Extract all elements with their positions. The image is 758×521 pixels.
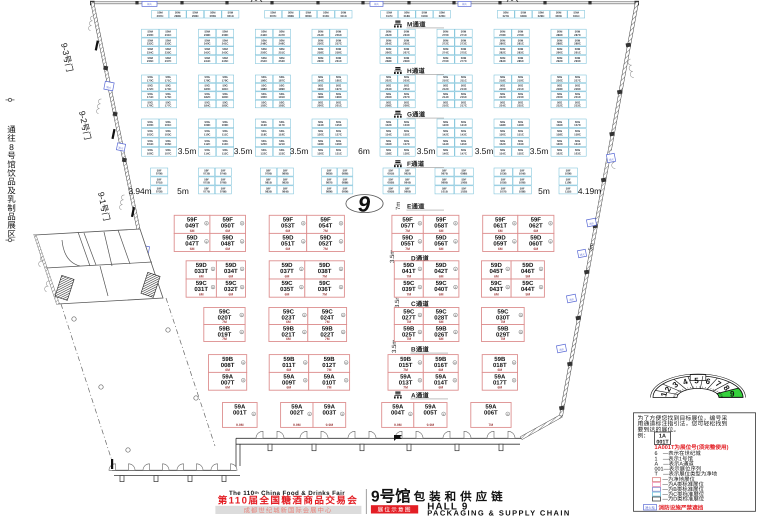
svg-text:126C: 126C bbox=[317, 132, 324, 136]
svg-text:117C: 117C bbox=[279, 123, 286, 127]
svg-text:074B: 074B bbox=[220, 172, 227, 176]
svg-text:114C: 114C bbox=[204, 151, 211, 155]
svg-text:199C: 199C bbox=[335, 95, 342, 99]
svg-text:153C: 153C bbox=[517, 142, 524, 146]
svg-text:150C: 150C bbox=[499, 132, 506, 136]
svg-text:59D: 59D bbox=[402, 235, 414, 242]
svg-text:143C: 143C bbox=[460, 132, 467, 136]
svg-text:59A: 59A bbox=[400, 374, 412, 381]
svg-text:F通道: F通道 bbox=[407, 160, 425, 168]
svg-text:252C: 252C bbox=[261, 59, 268, 63]
svg-text:328D: 328D bbox=[520, 14, 527, 18]
svg-text:124C: 124C bbox=[317, 123, 324, 127]
svg-text:157C: 157C bbox=[574, 123, 581, 127]
svg-text:235C: 235C bbox=[165, 50, 172, 54]
svg-text:230C: 230C bbox=[147, 33, 154, 37]
svg-text:203C: 203C bbox=[403, 78, 410, 82]
svg-text:59A: 59A bbox=[234, 404, 246, 411]
svg-text:176C: 176C bbox=[147, 104, 154, 108]
svg-text:111C: 111C bbox=[222, 132, 228, 136]
svg-text:174C: 174C bbox=[147, 95, 154, 99]
svg-text:3.94m: 3.94m bbox=[128, 186, 151, 196]
svg-text:G通道: G通道 bbox=[407, 111, 426, 119]
svg-text:6M: 6M bbox=[286, 229, 291, 233]
svg-text:5M: 5M bbox=[525, 293, 530, 297]
svg-text:消防设施严禁遮挡: 消防设施严禁遮挡 bbox=[659, 504, 704, 511]
svg-text:215C: 215C bbox=[460, 95, 467, 99]
svg-text:7M: 7M bbox=[403, 368, 408, 372]
svg-text:195C: 195C bbox=[335, 78, 342, 82]
svg-text:183C: 183C bbox=[222, 95, 229, 99]
svg-text:098B: 098B bbox=[461, 172, 468, 176]
svg-text:6M: 6M bbox=[190, 247, 195, 251]
svg-text:6M: 6M bbox=[229, 293, 234, 297]
svg-text:082B: 082B bbox=[282, 181, 289, 185]
svg-text:246C: 246C bbox=[261, 33, 268, 37]
svg-text:232C: 232C bbox=[147, 42, 154, 46]
svg-text:59F: 59F bbox=[436, 217, 447, 224]
svg-text:101B: 101B bbox=[441, 190, 448, 194]
svg-text:225C: 225C bbox=[517, 104, 524, 108]
svg-text:219C: 219C bbox=[517, 78, 524, 82]
svg-text:120C: 120C bbox=[261, 142, 268, 146]
svg-text:151C: 151C bbox=[517, 132, 524, 136]
svg-text:088B: 088B bbox=[342, 181, 349, 185]
svg-text:279C: 279C bbox=[517, 33, 524, 37]
svg-text:59D: 59D bbox=[495, 235, 507, 242]
svg-text:6M: 6M bbox=[439, 293, 444, 297]
svg-text:160C: 160C bbox=[556, 142, 563, 146]
svg-text:233C: 233C bbox=[574, 104, 581, 108]
svg-text:59C: 59C bbox=[281, 280, 293, 287]
svg-text:142C: 142C bbox=[442, 132, 449, 136]
svg-text:141C: 141C bbox=[460, 123, 467, 127]
svg-text:123C: 123C bbox=[278, 151, 285, 155]
svg-text:185C: 185C bbox=[222, 104, 229, 108]
svg-text:59B: 59B bbox=[222, 356, 234, 363]
svg-text:7M: 7M bbox=[322, 274, 327, 278]
svg-text:59C: 59C bbox=[225, 280, 237, 287]
svg-text:6M: 6M bbox=[225, 229, 230, 233]
svg-text:310D: 310D bbox=[323, 14, 330, 18]
svg-text:9: 9 bbox=[358, 192, 371, 217]
svg-text:186C: 186C bbox=[261, 78, 268, 82]
svg-text:071B: 071B bbox=[156, 181, 163, 185]
svg-text:122C: 122C bbox=[261, 151, 268, 155]
svg-text:130C: 130C bbox=[317, 151, 324, 155]
svg-text:9.9M: 9.9M bbox=[236, 423, 244, 427]
svg-text:159C: 159C bbox=[574, 132, 581, 136]
svg-text:6M: 6M bbox=[225, 386, 230, 390]
svg-text:59D: 59D bbox=[403, 262, 415, 269]
svg-text:092B: 092B bbox=[404, 172, 411, 176]
svg-text:087B: 087B bbox=[326, 181, 333, 185]
svg-text:消火栓: 消火栓 bbox=[645, 506, 656, 510]
svg-text:094B: 094B bbox=[404, 181, 411, 185]
svg-text:231C: 231C bbox=[165, 33, 172, 37]
svg-text:3.5m: 3.5m bbox=[475, 146, 494, 156]
svg-text:113C: 113C bbox=[222, 142, 229, 146]
svg-text:131C: 131C bbox=[335, 151, 342, 155]
svg-text:201C: 201C bbox=[335, 104, 342, 108]
svg-text:243C: 243C bbox=[222, 50, 229, 54]
svg-text:59A: 59A bbox=[425, 404, 437, 411]
svg-text:7M: 7M bbox=[323, 247, 328, 251]
svg-text:7M: 7M bbox=[403, 386, 408, 390]
svg-text:266C: 266C bbox=[385, 50, 392, 54]
svg-text:177C: 177C bbox=[165, 104, 172, 108]
svg-text:175C: 175C bbox=[165, 95, 172, 99]
svg-text:6M: 6M bbox=[225, 247, 230, 251]
svg-text:109C: 109C bbox=[222, 123, 229, 127]
svg-text:245C: 245C bbox=[222, 59, 229, 63]
svg-text:308D: 308D bbox=[287, 14, 294, 18]
svg-text:59B: 59B bbox=[435, 356, 447, 363]
svg-text:220C: 220C bbox=[499, 87, 506, 91]
svg-text:223C: 223C bbox=[517, 95, 524, 99]
svg-text:207C: 207C bbox=[403, 95, 410, 99]
svg-text:005T: 005T bbox=[424, 410, 438, 417]
svg-text:162C: 162C bbox=[556, 151, 563, 155]
svg-text:154C: 154C bbox=[499, 151, 506, 155]
svg-text:5m: 5m bbox=[538, 186, 550, 196]
svg-text:188C: 188C bbox=[261, 87, 268, 91]
svg-text:59D: 59D bbox=[491, 262, 503, 269]
svg-text:59A: 59A bbox=[494, 374, 506, 381]
svg-text:161C: 161C bbox=[574, 142, 581, 146]
svg-text:267C: 267C bbox=[403, 50, 410, 54]
svg-text:330D: 330D bbox=[555, 14, 562, 18]
svg-text:展位示意图: 展位示意图 bbox=[378, 507, 412, 514]
svg-text:204C: 204C bbox=[385, 87, 392, 91]
svg-text:107C: 107C bbox=[165, 151, 172, 155]
svg-text:59F: 59F bbox=[223, 217, 234, 224]
svg-text:7M: 7M bbox=[222, 320, 227, 324]
svg-text:095B: 095B bbox=[388, 190, 395, 194]
svg-text:105C: 105C bbox=[165, 142, 172, 146]
svg-text:135C: 135C bbox=[403, 132, 410, 136]
svg-text:230C: 230C bbox=[556, 95, 563, 99]
svg-text:236C: 236C bbox=[147, 59, 154, 63]
svg-text:6M: 6M bbox=[439, 229, 444, 233]
svg-text:077B: 077B bbox=[203, 190, 210, 194]
svg-text:276C: 276C bbox=[442, 59, 449, 63]
svg-text:6M: 6M bbox=[286, 247, 291, 251]
svg-text:3.5m: 3.5m bbox=[290, 146, 309, 156]
svg-text:281C: 281C bbox=[517, 42, 524, 46]
svg-text:7M: 7M bbox=[322, 293, 327, 297]
svg-text:089B: 089B bbox=[326, 190, 333, 194]
svg-text:181C: 181C bbox=[222, 87, 229, 91]
svg-text:217C: 217C bbox=[460, 104, 467, 108]
svg-text:147C: 147C bbox=[460, 151, 467, 155]
svg-text:288C: 288C bbox=[556, 42, 563, 46]
svg-text:171C: 171C bbox=[165, 78, 172, 82]
svg-text:103C: 103C bbox=[165, 132, 172, 136]
svg-text:208C: 208C bbox=[385, 104, 392, 108]
svg-text:59F: 59F bbox=[531, 217, 542, 224]
svg-text:097B: 097B bbox=[441, 172, 448, 176]
svg-text:7M: 7M bbox=[405, 229, 410, 233]
svg-text:115C: 115C bbox=[222, 151, 229, 155]
svg-text:274C: 274C bbox=[442, 50, 449, 54]
svg-text:216C: 216C bbox=[442, 104, 449, 108]
svg-text:H通道: H通道 bbox=[407, 67, 425, 75]
svg-text:099B: 099B bbox=[441, 181, 448, 185]
svg-text:196C: 196C bbox=[317, 87, 324, 91]
svg-text:59B: 59B bbox=[283, 326, 295, 333]
svg-text:119C: 119C bbox=[279, 132, 286, 136]
svg-text:297D: 297D bbox=[157, 14, 164, 18]
svg-text:083B: 083B bbox=[265, 190, 272, 194]
svg-text:6M: 6M bbox=[497, 368, 502, 372]
svg-text:6M: 6M bbox=[497, 386, 502, 390]
svg-text:59F: 59F bbox=[187, 217, 198, 224]
svg-text:163C: 163C bbox=[574, 151, 581, 155]
svg-text:290C: 290C bbox=[556, 50, 563, 54]
svg-text:301D: 301D bbox=[227, 14, 234, 18]
svg-text:59B: 59B bbox=[436, 326, 448, 333]
svg-text:112C: 112C bbox=[204, 142, 211, 146]
svg-text:218C: 218C bbox=[499, 78, 506, 82]
svg-text:086B: 086B bbox=[342, 172, 349, 176]
svg-text:311D: 311D bbox=[340, 14, 347, 18]
svg-text:309D: 309D bbox=[305, 14, 312, 18]
svg-text:59D: 59D bbox=[281, 262, 293, 269]
svg-text:9.9M: 9.9M bbox=[326, 423, 334, 427]
svg-text:072B: 072B bbox=[156, 190, 163, 194]
svg-text:320D: 320D bbox=[439, 14, 446, 18]
svg-text:7M: 7M bbox=[406, 293, 411, 297]
svg-text:59C: 59C bbox=[497, 309, 509, 316]
svg-text:173C: 173C bbox=[165, 87, 172, 91]
svg-text:6M: 6M bbox=[285, 274, 290, 278]
svg-text:6M: 6M bbox=[438, 368, 443, 372]
svg-text:205C: 205C bbox=[403, 87, 410, 91]
svg-text:7M: 7M bbox=[222, 337, 227, 341]
svg-text:59C: 59C bbox=[319, 280, 331, 287]
svg-text:59C: 59C bbox=[219, 309, 231, 316]
svg-text:214C: 214C bbox=[442, 95, 449, 99]
svg-text:134C: 134C bbox=[385, 132, 392, 136]
svg-text:6M: 6M bbox=[286, 337, 291, 341]
svg-text:172C: 172C bbox=[147, 87, 154, 91]
svg-text:229C: 229C bbox=[574, 87, 581, 91]
svg-text:133C: 133C bbox=[403, 123, 410, 127]
svg-text:272C: 272C bbox=[442, 42, 449, 46]
svg-text:258C: 258C bbox=[317, 50, 324, 54]
svg-text:7M: 7M bbox=[327, 386, 332, 390]
svg-text:250C: 250C bbox=[261, 50, 268, 54]
svg-text:6M: 6M bbox=[494, 293, 499, 297]
svg-text:6M: 6M bbox=[229, 274, 234, 278]
svg-text:59B: 59B bbox=[494, 356, 506, 363]
svg-text:076B: 076B bbox=[220, 181, 227, 185]
svg-text:7M: 7M bbox=[489, 423, 494, 427]
svg-text:307D: 307D bbox=[270, 14, 277, 18]
svg-text:128C: 128C bbox=[317, 142, 324, 146]
svg-text:253C: 253C bbox=[278, 59, 285, 63]
svg-text:6M: 6M bbox=[199, 293, 204, 297]
svg-text:127C: 127C bbox=[335, 132, 342, 136]
svg-text:298D: 298D bbox=[174, 14, 181, 18]
svg-text:3.5m: 3.5m bbox=[178, 146, 197, 156]
svg-text:59D: 59D bbox=[222, 235, 234, 242]
svg-text:084B: 084B bbox=[282, 190, 289, 194]
svg-text:59C: 59C bbox=[491, 280, 503, 287]
svg-text:59A: 59A bbox=[324, 404, 336, 411]
svg-text:319D: 319D bbox=[421, 14, 428, 18]
svg-text:6M: 6M bbox=[287, 368, 292, 372]
svg-text:278C: 278C bbox=[499, 33, 506, 37]
svg-text:200C: 200C bbox=[317, 104, 324, 108]
svg-text:190C: 190C bbox=[261, 95, 268, 99]
svg-text:M通道: M通道 bbox=[407, 20, 426, 28]
svg-text:106C: 106C bbox=[147, 151, 154, 155]
svg-text:251C: 251C bbox=[278, 50, 285, 54]
svg-text:6M: 6M bbox=[439, 320, 444, 324]
svg-text:59C: 59C bbox=[436, 280, 448, 287]
svg-text:5m: 5m bbox=[177, 186, 189, 196]
svg-text:273C: 273C bbox=[460, 42, 467, 46]
svg-text:125C: 125C bbox=[335, 123, 342, 127]
svg-text:226C: 226C bbox=[556, 78, 563, 82]
svg-text:7M: 7M bbox=[406, 337, 411, 341]
svg-text:144C: 144C bbox=[442, 142, 449, 146]
svg-text:240C: 240C bbox=[204, 42, 211, 46]
svg-text:59D: 59D bbox=[320, 235, 332, 242]
svg-text:262C: 262C bbox=[385, 33, 392, 37]
svg-text:234C: 234C bbox=[147, 50, 154, 54]
svg-text:237C: 237C bbox=[165, 59, 172, 63]
svg-text:268C: 268C bbox=[385, 59, 392, 63]
svg-text:3.5m: 3.5m bbox=[417, 146, 436, 156]
svg-text:59C: 59C bbox=[403, 309, 415, 316]
svg-text:264C: 264C bbox=[385, 42, 392, 46]
svg-text:59F: 59F bbox=[402, 217, 413, 224]
svg-text:078B: 078B bbox=[220, 190, 227, 194]
svg-text:070B: 070B bbox=[156, 172, 163, 176]
svg-text:106B: 106B bbox=[519, 181, 526, 185]
svg-text:139C: 139C bbox=[403, 151, 410, 155]
svg-text:146C: 146C bbox=[442, 151, 449, 155]
svg-text:284C: 284C bbox=[499, 59, 506, 63]
svg-text:C通道: C通道 bbox=[411, 300, 429, 308]
svg-text:001T: 001T bbox=[233, 410, 247, 417]
svg-text:247C: 247C bbox=[278, 33, 285, 37]
svg-text:104B: 104B bbox=[519, 172, 526, 176]
svg-text:085B: 085B bbox=[326, 172, 333, 176]
svg-text:59B: 59B bbox=[400, 356, 412, 363]
svg-text:239C: 239C bbox=[222, 33, 229, 37]
svg-text:261C: 261C bbox=[335, 59, 342, 63]
svg-text:59F: 59F bbox=[283, 217, 294, 224]
svg-text:110B: 110B bbox=[565, 181, 572, 185]
svg-text:155C: 155C bbox=[517, 151, 524, 155]
svg-text:287C: 287C bbox=[574, 33, 581, 37]
svg-text:138C: 138C bbox=[385, 151, 392, 155]
svg-text:59D: 59D bbox=[530, 235, 542, 242]
svg-text:111B: 111B bbox=[565, 190, 571, 194]
svg-text:9.9M: 9.9M bbox=[293, 423, 301, 427]
svg-text:第110届全国糖酒商品交易会: 第110届全国糖酒商品交易会 bbox=[218, 494, 359, 506]
svg-text:129C: 129C bbox=[335, 142, 342, 146]
svg-text:327D: 327D bbox=[502, 14, 509, 18]
svg-text:242C: 242C bbox=[204, 50, 211, 54]
svg-text:202C: 202C bbox=[385, 78, 392, 82]
svg-text:073B: 073B bbox=[203, 172, 210, 176]
svg-text:090B: 090B bbox=[342, 190, 349, 194]
svg-text:145C: 145C bbox=[460, 142, 467, 146]
svg-text:6M: 6M bbox=[439, 274, 444, 278]
svg-text:7M: 7M bbox=[323, 229, 328, 233]
svg-text:59A: 59A bbox=[392, 404, 404, 411]
svg-text:241C: 241C bbox=[222, 42, 229, 46]
svg-text:7M: 7M bbox=[501, 337, 506, 341]
svg-text:A通道: A通道 bbox=[411, 391, 429, 399]
svg-text:102C: 102C bbox=[147, 132, 154, 136]
svg-text:286C: 286C bbox=[556, 33, 563, 37]
svg-text:081B: 081B bbox=[265, 181, 272, 185]
svg-text:080B: 080B bbox=[282, 172, 289, 176]
svg-text:59A: 59A bbox=[435, 374, 447, 381]
svg-text:213C: 213C bbox=[460, 87, 467, 91]
svg-text:59B: 59B bbox=[324, 356, 336, 363]
svg-text:211C: 211C bbox=[460, 78, 467, 82]
svg-text:198C: 198C bbox=[317, 95, 324, 99]
svg-text:59C: 59C bbox=[322, 309, 334, 316]
svg-text:317D: 317D bbox=[386, 14, 393, 18]
svg-text:104C: 104C bbox=[147, 142, 154, 146]
svg-text:331D: 331D bbox=[573, 14, 580, 18]
svg-text:B通道: B通道 bbox=[411, 346, 429, 354]
svg-text:132C: 132C bbox=[385, 123, 392, 127]
svg-text:6M: 6M bbox=[533, 247, 538, 251]
svg-text:221C: 221C bbox=[517, 87, 524, 91]
svg-text:59F: 59F bbox=[320, 217, 331, 224]
svg-text:110C: 110C bbox=[204, 132, 211, 136]
svg-text:280C: 280C bbox=[499, 42, 506, 46]
svg-text:224C: 224C bbox=[499, 104, 506, 108]
svg-text:59C: 59C bbox=[283, 309, 295, 316]
svg-text:消火: 消火 bbox=[147, 2, 153, 6]
svg-text:259C: 259C bbox=[335, 50, 342, 54]
svg-text:140C: 140C bbox=[442, 123, 449, 127]
svg-text:9.9M: 9.9M bbox=[427, 423, 435, 427]
svg-text:093B: 093B bbox=[388, 181, 395, 185]
svg-text:6M: 6M bbox=[533, 229, 538, 233]
svg-text:59D: 59D bbox=[436, 235, 448, 242]
svg-text:271C: 271C bbox=[460, 33, 467, 37]
svg-text:248C: 248C bbox=[261, 42, 268, 46]
svg-text:59A: 59A bbox=[324, 374, 336, 381]
svg-text:6m: 6m bbox=[358, 146, 370, 156]
svg-text:260C: 260C bbox=[317, 59, 324, 63]
svg-text:137C: 137C bbox=[403, 142, 410, 146]
svg-text:7M: 7M bbox=[325, 320, 330, 324]
svg-text:249C: 249C bbox=[278, 42, 285, 46]
svg-text:179C: 179C bbox=[222, 78, 229, 82]
svg-text:6M: 6M bbox=[199, 274, 204, 278]
svg-text:例：: 例： bbox=[638, 433, 650, 440]
svg-text:189C: 189C bbox=[278, 87, 285, 91]
svg-text:158C: 158C bbox=[556, 132, 563, 136]
svg-text:283C: 283C bbox=[517, 50, 524, 54]
svg-text:103B: 103B bbox=[500, 172, 507, 176]
svg-text:192C: 192C bbox=[261, 104, 268, 108]
svg-text:59C: 59C bbox=[522, 280, 534, 287]
svg-text:254C: 254C bbox=[317, 33, 324, 37]
